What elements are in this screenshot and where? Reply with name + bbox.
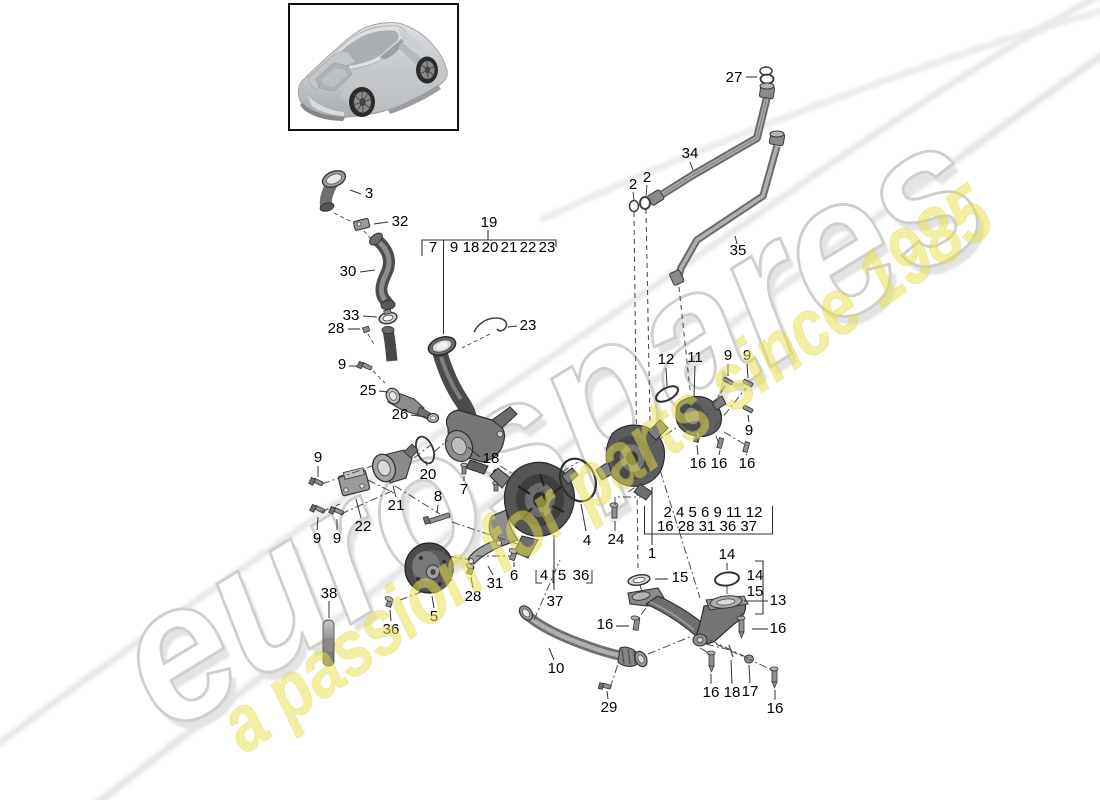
svg-text:16 28 31 36 37: 16 28 31 36 37 [657, 518, 757, 535]
svg-text:7: 7 [460, 481, 468, 498]
svg-text:15: 15 [672, 569, 689, 586]
svg-text:7: 7 [429, 239, 437, 256]
svg-text:20: 20 [420, 466, 437, 483]
svg-text:32: 32 [392, 213, 409, 230]
svg-text:14: 14 [719, 546, 736, 563]
svg-text:20: 20 [482, 239, 499, 256]
svg-text:3: 3 [365, 185, 373, 202]
svg-text:16: 16 [597, 616, 614, 633]
svg-text:30: 30 [340, 263, 357, 280]
svg-text:16: 16 [739, 455, 756, 472]
svg-text:35: 35 [730, 242, 747, 259]
svg-text:24: 24 [608, 531, 625, 548]
svg-text:1: 1 [648, 545, 656, 562]
svg-text:18: 18 [483, 450, 500, 467]
svg-text:17: 17 [742, 683, 759, 700]
svg-text:28: 28 [328, 320, 345, 337]
svg-text:36: 36 [573, 567, 590, 584]
svg-text:14: 14 [747, 567, 764, 584]
svg-text:9: 9 [338, 356, 346, 373]
svg-text:12: 12 [658, 351, 675, 368]
svg-text:9: 9 [314, 449, 322, 466]
svg-text:9: 9 [333, 530, 341, 547]
svg-text:25: 25 [360, 382, 377, 399]
svg-text:5: 5 [558, 567, 566, 584]
svg-text:23: 23 [539, 239, 556, 256]
svg-text:2: 2 [643, 169, 651, 186]
svg-text:21: 21 [388, 497, 405, 514]
svg-text:21: 21 [501, 239, 518, 256]
svg-text:13: 13 [770, 592, 787, 609]
svg-text:29: 29 [601, 699, 618, 716]
svg-text:16: 16 [767, 700, 784, 717]
svg-text:33: 33 [343, 307, 360, 324]
svg-text:16: 16 [711, 455, 728, 472]
svg-text:27: 27 [726, 69, 743, 86]
svg-text:22: 22 [520, 239, 537, 256]
svg-text:15: 15 [747, 583, 764, 600]
svg-text:38: 38 [321, 585, 338, 602]
svg-text:9: 9 [313, 530, 321, 547]
svg-text:34: 34 [682, 145, 699, 162]
svg-text:8: 8 [434, 488, 442, 505]
svg-text:37: 37 [547, 593, 564, 610]
svg-text:16: 16 [703, 684, 720, 701]
svg-text:10: 10 [548, 660, 565, 677]
svg-text:9: 9 [450, 239, 458, 256]
svg-text:16: 16 [770, 620, 787, 637]
svg-text:18: 18 [724, 684, 741, 701]
svg-text:23: 23 [520, 317, 537, 334]
svg-text:4: 4 [540, 567, 548, 584]
svg-text:26: 26 [392, 406, 409, 423]
svg-text:2: 2 [629, 176, 637, 193]
svg-text:18: 18 [463, 239, 480, 256]
svg-text:22: 22 [355, 518, 372, 535]
svg-text:19: 19 [481, 214, 498, 231]
